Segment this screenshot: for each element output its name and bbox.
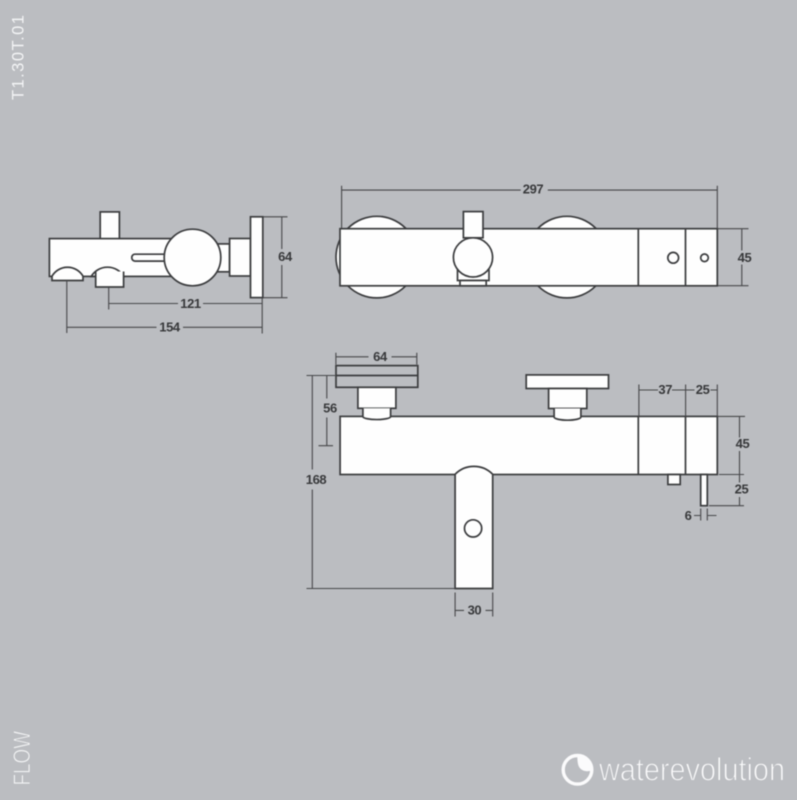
svg-text:waterevolution: waterevolution: [598, 752, 785, 788]
svg-text:121: 121: [180, 296, 201, 311]
svg-text:168: 168: [306, 472, 327, 487]
svg-text:T1.30T.01: T1.30T.01: [9, 15, 27, 100]
svg-text:45: 45: [736, 436, 750, 451]
svg-text:37: 37: [658, 382, 672, 397]
svg-text:64: 64: [278, 249, 293, 264]
svg-text:64: 64: [373, 349, 388, 364]
svg-text:25: 25: [735, 482, 749, 497]
svg-text:25: 25: [696, 382, 710, 397]
svg-text:45: 45: [738, 250, 752, 265]
svg-text:FLOW: FLOW: [9, 731, 36, 786]
svg-text:297: 297: [523, 182, 544, 197]
svg-text:6: 6: [685, 508, 692, 523]
svg-text:154: 154: [159, 320, 181, 335]
svg-text:56: 56: [323, 400, 337, 415]
svg-text:30: 30: [468, 603, 482, 618]
